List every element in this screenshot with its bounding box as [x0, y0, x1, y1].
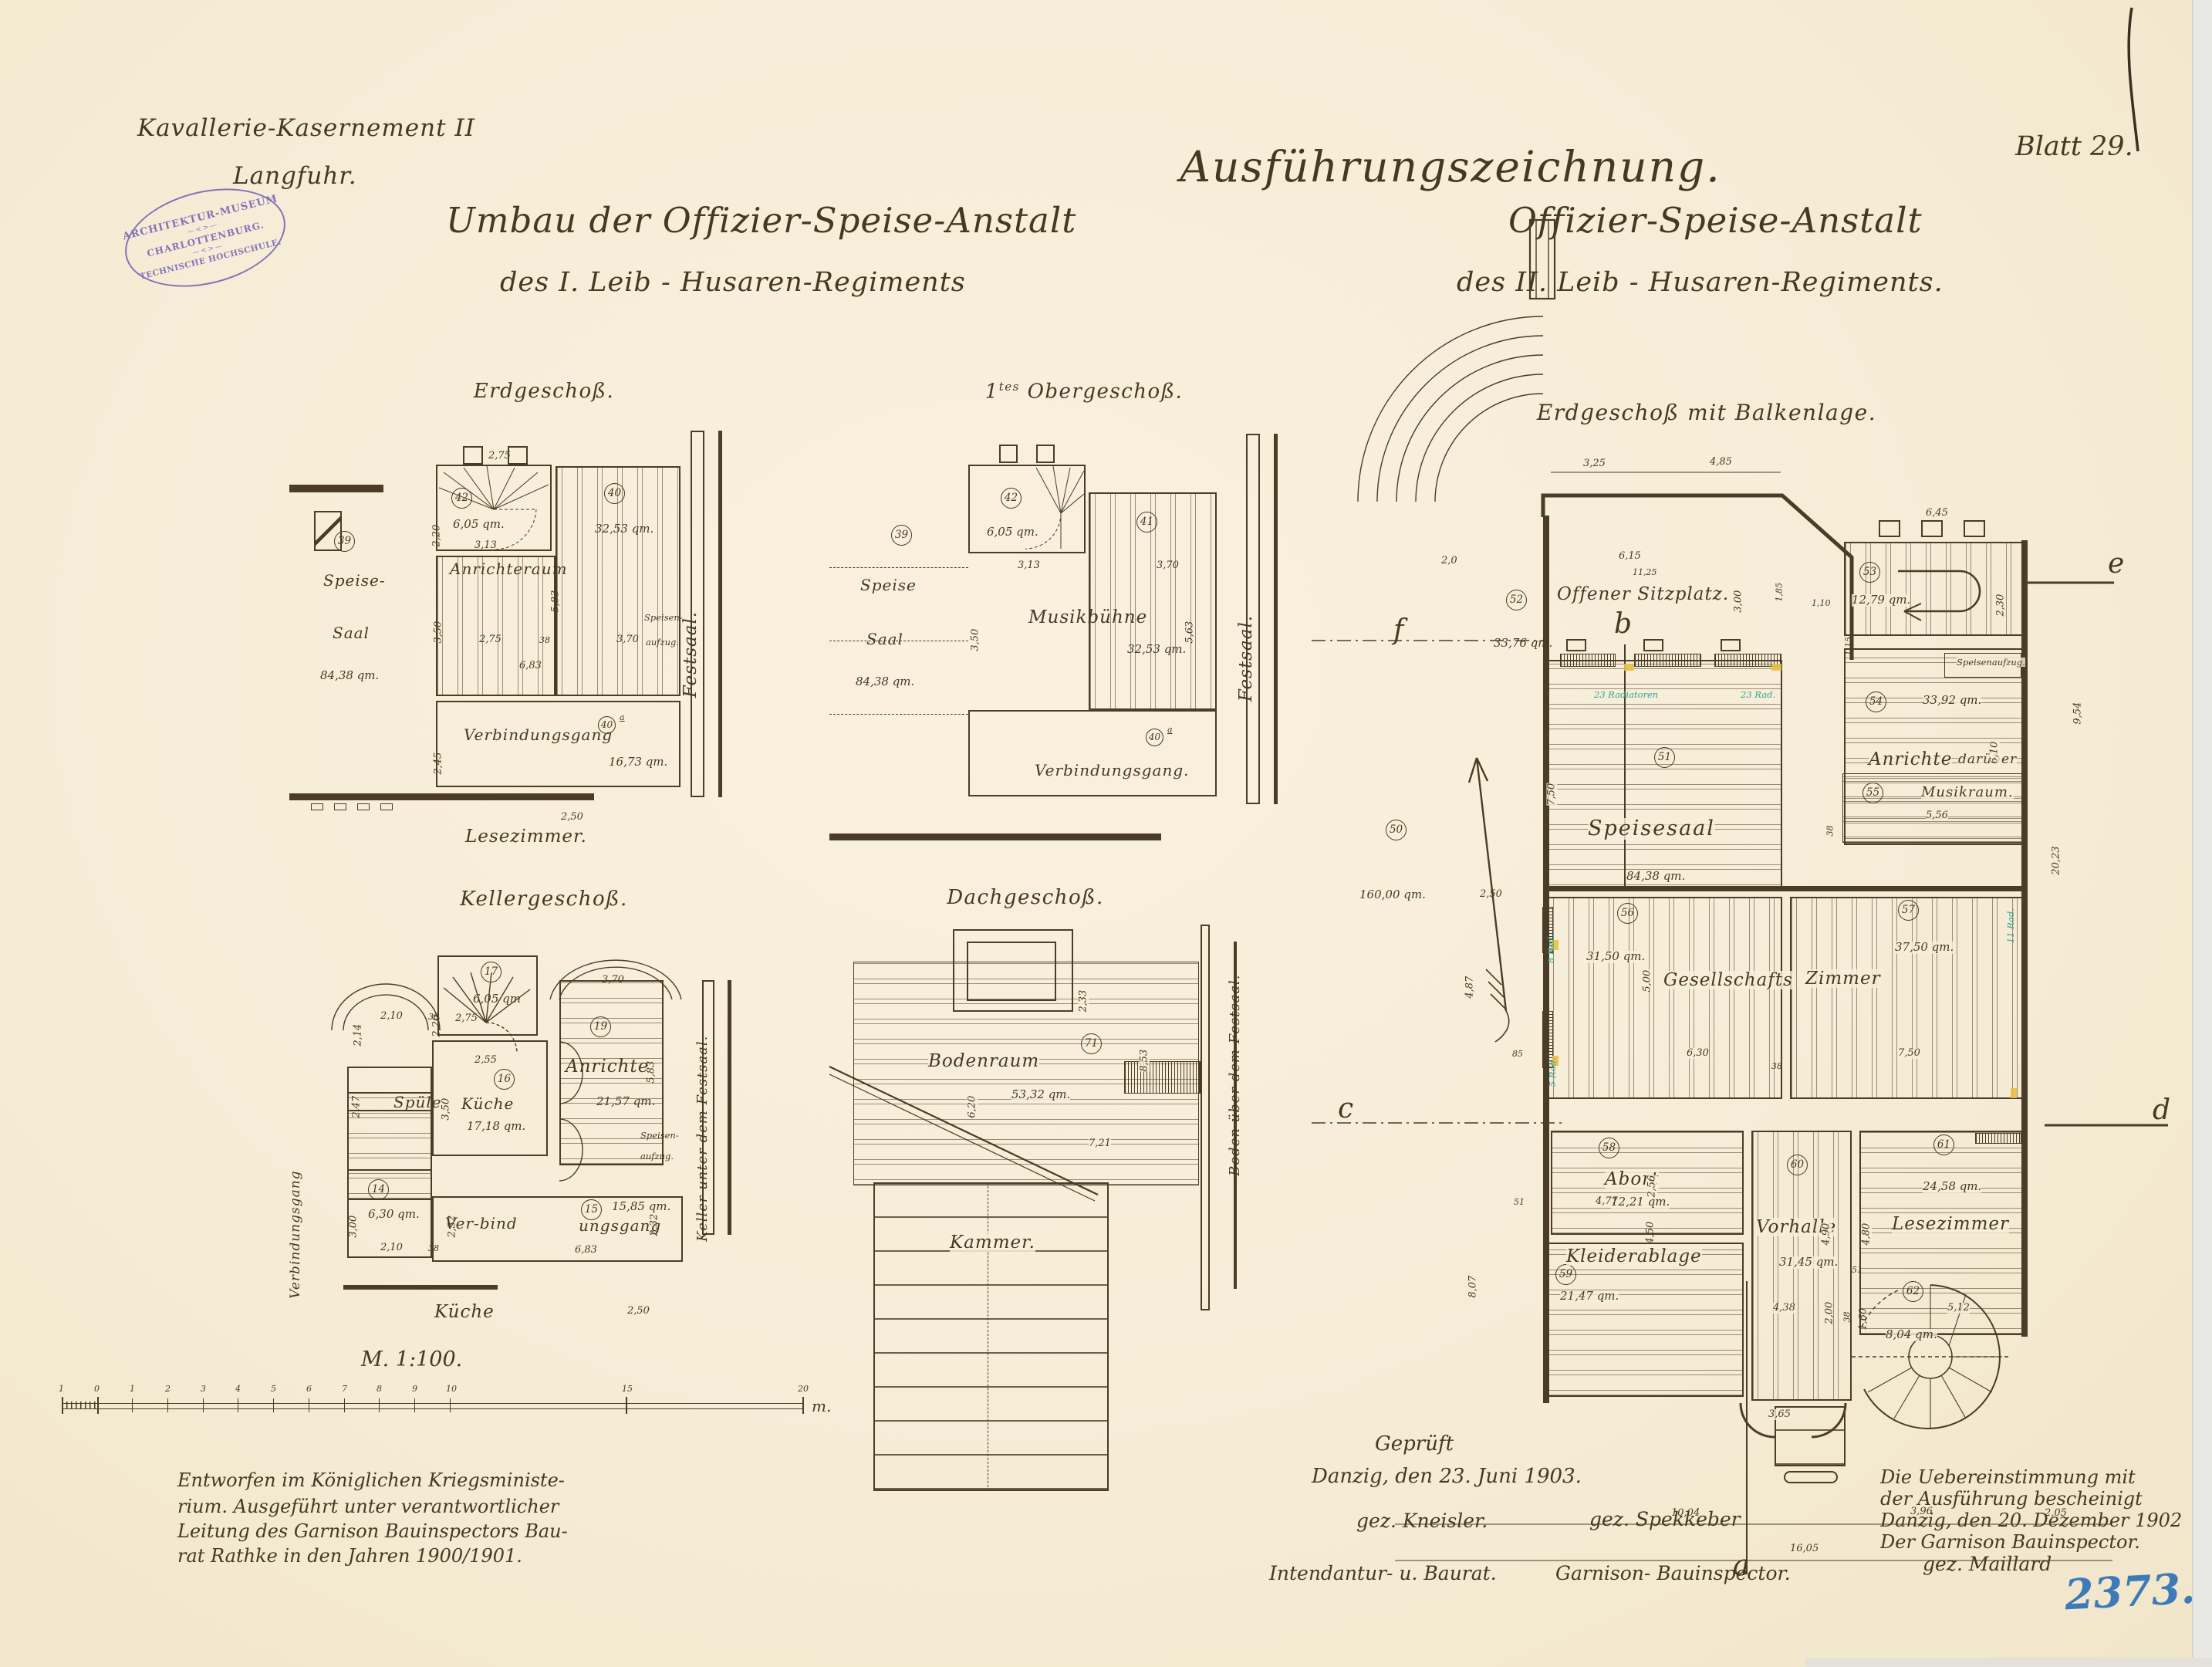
- room-area-41: 32,53 qm.: [1127, 644, 1186, 656]
- note-right-line3: Danzig, den 20. Dezember 1902: [1880, 1511, 2182, 1530]
- room-label-kueche: Küche: [461, 1096, 514, 1112]
- room-number-39: 39: [891, 525, 912, 546]
- dim: 1,15: [1844, 637, 1853, 656]
- drawing-sheet: Kavallerie-Kasernement II Langfuhr. ARCH…: [0, 0, 2212, 1667]
- scale-tick: [344, 1398, 345, 1412]
- room-number-53: 53: [1859, 562, 1880, 583]
- dim: 3,50: [433, 621, 444, 644]
- scan-edge-bottom: [1805, 1658, 2212, 1667]
- dim: 51: [1852, 1266, 1862, 1275]
- dim: 2,56: [1646, 1175, 1657, 1198]
- pier: [1721, 639, 1741, 651]
- dim: 2,20: [431, 525, 442, 547]
- room-area-bodenraum: 53,32 qm.: [1011, 1089, 1070, 1101]
- room-area-50: 160,00 qm.: [1359, 889, 1426, 901]
- note-gepruft: Geprüft: [1375, 1434, 1454, 1455]
- dim: 51: [1514, 1198, 1525, 1207]
- dim: 5,83: [550, 590, 561, 613]
- dim: 2,10: [380, 1243, 403, 1253]
- dim: 2,75: [479, 634, 501, 645]
- dim: 1,60: [1858, 1308, 1869, 1331]
- room-label-darueber: darüber: [1958, 753, 2017, 767]
- room-number-51: 51: [1654, 747, 1675, 768]
- room-label-gesellschaft: Gesellschafts: [1663, 971, 1793, 989]
- note-center-date: Danzig, den 23. Juni 1903.: [1312, 1466, 1582, 1487]
- dim: 6,45: [1926, 508, 1948, 519]
- dim: 3,13: [1018, 560, 1040, 571]
- pier: [1643, 639, 1663, 651]
- room-area-57: 37,50 qm.: [1895, 942, 1954, 954]
- scale-tick-label: 7: [342, 1385, 347, 1394]
- room-area-51: 84,38 qm.: [1626, 871, 1685, 883]
- room-number-59: 59: [1555, 1264, 1576, 1285]
- room-area-53: 12,79 qm.: [1852, 594, 1910, 607]
- dim: 2,30: [1995, 594, 2006, 617]
- dim: 9,54: [2072, 702, 2083, 725]
- dim: 2,10: [380, 1011, 403, 1022]
- dim: 2,0: [1441, 556, 1457, 566]
- radiator-note: 23 Rad.: [1741, 690, 1775, 699]
- section-line-a: [1746, 1281, 1748, 1574]
- dim: 38: [1771, 1062, 1782, 1071]
- note-left-line1: Entworfen im Königlichen Kriegsministe-: [177, 1471, 565, 1490]
- speisenaufzug-label: Speisenaufzug.: [1957, 658, 2025, 667]
- dim: 6,30: [1687, 1048, 1709, 1059]
- dim: 4,38: [1773, 1303, 1795, 1314]
- dim: 3,00: [1733, 590, 1744, 613]
- room-number-52: 52: [1506, 590, 1527, 610]
- highlight-mark: [1624, 664, 1634, 671]
- room-area-61: 24,58 qm.: [1923, 1181, 1981, 1193]
- room-area-14: 6,30 qm.: [368, 1209, 420, 1221]
- radiator-note: 5 Rad.: [1548, 1057, 1557, 1087]
- dim: 4,80: [1861, 1223, 1872, 1246]
- room-area-56: 31,50 qm.: [1586, 951, 1645, 963]
- scale-tick-label: 3: [201, 1385, 206, 1394]
- room-number-57: 57: [1898, 900, 1919, 921]
- dim: 2,50: [561, 812, 583, 823]
- room-area-54: 33,92 qm.: [1923, 695, 1981, 707]
- room-number-42: 42: [451, 488, 472, 509]
- dim: 7,50: [1546, 783, 1557, 806]
- scale-bar-subdivision: [62, 1402, 97, 1409]
- left-subtitle-line2: des I. Leib - Husaren-Regiments: [500, 269, 966, 297]
- project-title-line2: Langfuhr.: [233, 164, 357, 189]
- room-area-52: 33,76 qm.: [1494, 637, 1552, 650]
- room-label-keller-festsaal: Keller unter dem Festsaal.: [696, 1036, 711, 1242]
- project-title-line1: Kavallerie-Kasernement II: [137, 116, 475, 141]
- dim: 2,32: [447, 1216, 458, 1238]
- room-area-40: 32,53 qm.: [595, 523, 653, 536]
- scale-bar: [62, 1403, 802, 1409]
- room-number-54: 54: [1866, 691, 1886, 712]
- dim: 2,33: [1078, 990, 1089, 1013]
- main-title: Ausführungszeichnung.: [1180, 145, 1721, 190]
- scale-tick-label: 15: [622, 1385, 633, 1394]
- wall: [1547, 886, 2023, 891]
- scale-tick: [379, 1398, 380, 1412]
- dim: 5,56: [1926, 810, 1948, 821]
- room-number-16: 16: [494, 1069, 515, 1090]
- section-letter-d: d: [2153, 1096, 2170, 1125]
- dim: 6,15: [1619, 551, 1641, 562]
- dim: 20,23: [2051, 846, 2062, 874]
- dim: 6,83: [575, 1245, 597, 1256]
- room-number-40a-suffix: a: [1167, 725, 1173, 735]
- dim: 11,25: [1633, 568, 1657, 577]
- room-label-kammer: Kammer.: [950, 1233, 1035, 1252]
- room-number-19: 19: [590, 1016, 611, 1037]
- radiator-note: 11 Rad.: [2006, 908, 2015, 943]
- dim: 2,32: [649, 1214, 660, 1236]
- room-label-verbindungsgang: Verbindungsgang: [464, 727, 613, 743]
- room-area-59: 21,47 qm.: [1560, 1290, 1619, 1303]
- scale-tick: [238, 1398, 238, 1412]
- room-label-lesezimmer: Lesezimmer: [1892, 1215, 2009, 1233]
- room-57: [1790, 897, 2023, 1099]
- room-label-verbindungsgang-vertical: Verbindungsgang: [289, 1170, 303, 1298]
- dim: 4,50: [1645, 1222, 1656, 1244]
- room-area-16: 17,18 qm.: [467, 1121, 525, 1133]
- scale-tick: [450, 1398, 451, 1412]
- plan-balkenlage: Erdgeschoß mit Balkenlage.: [1312, 208, 2195, 1598]
- scale-tick-label: 0: [94, 1385, 100, 1394]
- room-area-58: 12,21 qm.: [1611, 1196, 1670, 1209]
- note-right-line4: Der Garnison Bauinspector.: [1880, 1533, 2140, 1552]
- room-label-anrichteraum: Anrichteraum: [450, 561, 568, 577]
- stair-fan-drawing: [289, 370, 791, 872]
- dim: 38: [1825, 826, 1835, 837]
- scale-tick-label: 1: [130, 1385, 135, 1394]
- note-center-role2: Garnison- Bauinspector.: [1555, 1564, 1791, 1584]
- speisenaufzug-label: Speisen-: [644, 613, 683, 622]
- entrance-step-oval: [1784, 1471, 1838, 1483]
- dim: 1,10: [1812, 599, 1831, 608]
- room-number-50: 50: [1386, 820, 1407, 840]
- note-left-line3: Leitung des Garnison Bauinspectors Bau-: [177, 1522, 568, 1541]
- scale-tick-label: 9: [412, 1385, 417, 1394]
- dim: 5,00: [1642, 970, 1653, 992]
- dim: 38: [428, 1013, 439, 1022]
- dim: 38: [1842, 1312, 1852, 1323]
- section-letter-b: b: [1614, 610, 1632, 639]
- chimney: [1879, 520, 1900, 537]
- scale-tick: [132, 1398, 133, 1412]
- room-label-speisesaal: Speise: [860, 577, 917, 593]
- axis-line: [988, 1182, 988, 1491]
- pier: [1566, 639, 1586, 651]
- room-label-musikraum: Musikraum.: [1921, 786, 2014, 800]
- scale-unit: m.: [812, 1398, 831, 1415]
- scale-label: M. 1:100.: [361, 1349, 462, 1371]
- note-left-line2: rium. Ausgeführt unter verantwortlicher: [177, 1497, 559, 1517]
- scale-tick-label: 20: [798, 1385, 809, 1394]
- room-label-speisesaal: Speisesaal: [1588, 818, 1715, 840]
- room-area-40a: 16,73 qm.: [609, 756, 667, 769]
- room-number-39: 39: [334, 531, 355, 552]
- speisenaufzug-label: Speisen-: [640, 1131, 679, 1140]
- scan-edge-right: [2192, 0, 2212, 1667]
- scale-tick: [167, 1398, 168, 1412]
- wall: [728, 980, 731, 1235]
- museum-stamp: ARCHITEKTUR-MUSEUM —<>— CHARLOTTENBURG. …: [115, 173, 296, 303]
- plan-erdgeschoss: Erdgeschoß. 2,75 42 2,20: [289, 370, 791, 872]
- dim: 2,50: [1480, 889, 1502, 900]
- radiator: [1560, 654, 1616, 667]
- scale-tick: [309, 1398, 309, 1412]
- room-number-58: 58: [1599, 1138, 1619, 1158]
- room-label-spuele: Spüle: [393, 1094, 442, 1111]
- room-number-14: 14: [368, 1179, 389, 1200]
- highlight-mark: [2011, 1088, 2017, 1098]
- note-right-line2: der Ausführung bescheinigt: [1880, 1489, 2143, 1509]
- plan-kellergeschoss: Kellergeschoß. 17 6,05 qm: [282, 864, 799, 1335]
- dim: 3,70: [1157, 560, 1179, 571]
- section-line-b: [1624, 644, 1626, 891]
- room-label-speisesaal: Saal: [333, 625, 370, 641]
- dim: 4,90: [1821, 1223, 1832, 1246]
- dim: 7,21: [1089, 1138, 1111, 1149]
- dim: 1,85: [1775, 583, 1784, 602]
- radiator: [1975, 1133, 2021, 1144]
- dim: 2,55: [474, 1055, 497, 1066]
- room-label-boden-festsaal: Boden über dem Festsaal.: [1228, 974, 1243, 1175]
- room-number-55: 55: [1862, 783, 1883, 803]
- room-label-lesezimmer: Lesezimmer.: [465, 827, 587, 846]
- left-subtitle-line1: Umbau der Offizier-Speise-Anstalt: [446, 202, 1076, 238]
- radiator-note: 23 Radiatoren: [1594, 690, 1658, 699]
- room-number-40a-suffix: a: [620, 713, 625, 722]
- dim: 2,00: [1824, 1302, 1835, 1324]
- scale-tick: [273, 1398, 274, 1412]
- radiator: [1634, 654, 1701, 667]
- speisenaufzug-label: aufzug.: [646, 637, 679, 647]
- room-number-42: 42: [1001, 488, 1022, 509]
- room-label-sitzplatz: Offener Sitzplatz.: [1557, 585, 1729, 604]
- note-left-line4: rat Rathke in den Jahren 1900/1901.: [177, 1547, 522, 1566]
- dim: 2,14: [353, 1024, 363, 1047]
- room-label-verbindungsgang: Verbindungsgang.: [1035, 762, 1189, 779]
- pen-stroke-mark: [2110, 6, 2164, 161]
- scale-tick: [626, 1397, 627, 1414]
- dim: 8,53: [1139, 1050, 1150, 1072]
- room-area-39: 84,38 qm.: [320, 670, 379, 682]
- dim: 5,63: [1184, 621, 1195, 644]
- archive-number: 2373.: [2064, 1567, 2197, 1617]
- dim: 2,50: [627, 1306, 650, 1317]
- room-number-40: 40: [604, 483, 625, 504]
- section-letter-c: c: [1338, 1094, 1353, 1124]
- scale-tick: [802, 1397, 804, 1414]
- room-label-speisesaal: Saal: [866, 631, 903, 648]
- room-label-festsaal: Festsaal.: [681, 611, 700, 698]
- kammer-room: [873, 1182, 1109, 1491]
- dim: 85: [1512, 1050, 1523, 1059]
- note-center-signature2: gez. Spekkeber: [1589, 1510, 1741, 1530]
- note-center-role1: Intendantur- u. Baurat.: [1269, 1564, 1497, 1584]
- room-label-musikbuehne: Musikbühne: [1028, 608, 1147, 627]
- dim: 2,75: [488, 451, 511, 462]
- room-label-zimmer: Zimmer: [1805, 969, 1881, 988]
- room-area-17: 6,05 qm: [473, 993, 521, 1006]
- room-area-15: 15,85 qm.: [612, 1201, 670, 1213]
- note-right-signature: gez. Maillard: [1923, 1554, 2052, 1574]
- scale-tick-label: 8: [377, 1385, 382, 1394]
- dim: 6,20: [967, 1096, 978, 1118]
- speisenaufzug-label: aufzug.: [640, 1151, 674, 1161]
- dim: 4,77: [1596, 1196, 1618, 1207]
- scale-tick: [414, 1398, 415, 1412]
- gesellschaftszimmer-room: [1547, 897, 1782, 1099]
- dim: 5,83: [646, 1061, 657, 1084]
- dim: 3,50: [441, 1098, 451, 1121]
- room-area-39: 84,38 qm.: [856, 676, 914, 688]
- room-label-festsaal: Festsaal.: [1237, 615, 1255, 702]
- scale-tick: [97, 1397, 99, 1414]
- dim: 3,13: [474, 540, 497, 551]
- room-area-42: 6,05 qm.: [987, 526, 1038, 539]
- wall: [343, 1285, 498, 1290]
- dim: 3,70: [616, 634, 639, 645]
- room-area-60: 31,45 qm.: [1779, 1256, 1838, 1269]
- dim: 4,87: [1464, 976, 1475, 999]
- room-number-40a: 40: [598, 716, 616, 734]
- dim: 3,00: [348, 1216, 359, 1238]
- dim: 2,75: [455, 1013, 478, 1024]
- room-number-17: 17: [481, 962, 501, 982]
- dim: 38: [428, 1244, 439, 1253]
- scale-tick-label: 2: [165, 1385, 171, 1394]
- scale-tick-label: 5: [271, 1385, 276, 1394]
- scale-tick-label: 6: [306, 1385, 312, 1394]
- dim: 38: [539, 636, 550, 645]
- room-number-56: 56: [1617, 903, 1638, 924]
- radiator-note: 8 Rad.: [1546, 934, 1555, 963]
- room-label-kleiderablage: Kleiderablage: [1566, 1247, 1702, 1266]
- note-right-line1: Die Uebereinstimmung mit: [1880, 1468, 2136, 1487]
- note-center-signature1: gez. Kneisler.: [1356, 1511, 1488, 1531]
- dim: 6,83: [519, 661, 542, 671]
- room-area-42: 6,05 qm.: [453, 519, 505, 531]
- room-number-61: 61: [1933, 1134, 1954, 1155]
- room-area-19: 21,57 qm.: [596, 1096, 655, 1108]
- dim: 3,70: [602, 975, 624, 986]
- room-label-bodenraum: Bodenraum: [928, 1052, 1039, 1070]
- dim: 7,50: [1898, 1048, 1920, 1059]
- dim: 4,85: [1710, 457, 1732, 468]
- chimney: [1964, 520, 1985, 537]
- room-area-62: 8,04 qm.: [1886, 1329, 1937, 1341]
- plan-obergeschoss: 1tes Obergeschoß. 42 6,05 qm. 39 Speise …: [829, 370, 1331, 872]
- dim: 3,50: [970, 629, 981, 651]
- room-number-41: 41: [1136, 512, 1157, 533]
- dim: 3,65: [1768, 1409, 1791, 1420]
- scale-tick-label: 1: [59, 1385, 64, 1394]
- stair-room-53: [1844, 542, 2023, 636]
- dim: 6,10: [1989, 742, 2000, 764]
- chimney: [1921, 520, 1943, 537]
- room-number-60: 60: [1787, 1155, 1808, 1175]
- room-label-speisesaal: Speise-: [323, 573, 386, 589]
- dim: 2,45: [433, 752, 444, 775]
- dim: 8,07: [1467, 1276, 1478, 1298]
- room-number-62: 62: [1903, 1281, 1923, 1302]
- scale-tick: [203, 1398, 204, 1412]
- room-number-71: 71: [1081, 1033, 1102, 1054]
- room-label-anrichte: Anrichte: [566, 1057, 649, 1076]
- dim: 5,12: [1947, 1303, 1970, 1314]
- scale-tick-label: 4: [235, 1385, 241, 1394]
- room-label-kueche-unten: Küche: [434, 1303, 495, 1321]
- highlight-mark: [1771, 664, 1781, 671]
- dim: 3,25: [1583, 458, 1606, 469]
- plan-dachgeschoss: Dachgeschoß. 71 Bodenraum 53,32 qm. 6,20…: [829, 864, 1331, 1559]
- section-letter-e: e: [2108, 549, 2124, 579]
- room-label-anrichte: Anrichte: [1869, 750, 1952, 769]
- dim: 16,05: [1790, 1544, 1819, 1554]
- scale-tick: [62, 1397, 63, 1414]
- dim: 2,47: [351, 1096, 362, 1118]
- room-number-40a: 40: [1146, 729, 1163, 746]
- scale-tick-label: 10: [446, 1385, 457, 1394]
- section-letter-f: f: [1393, 616, 1403, 645]
